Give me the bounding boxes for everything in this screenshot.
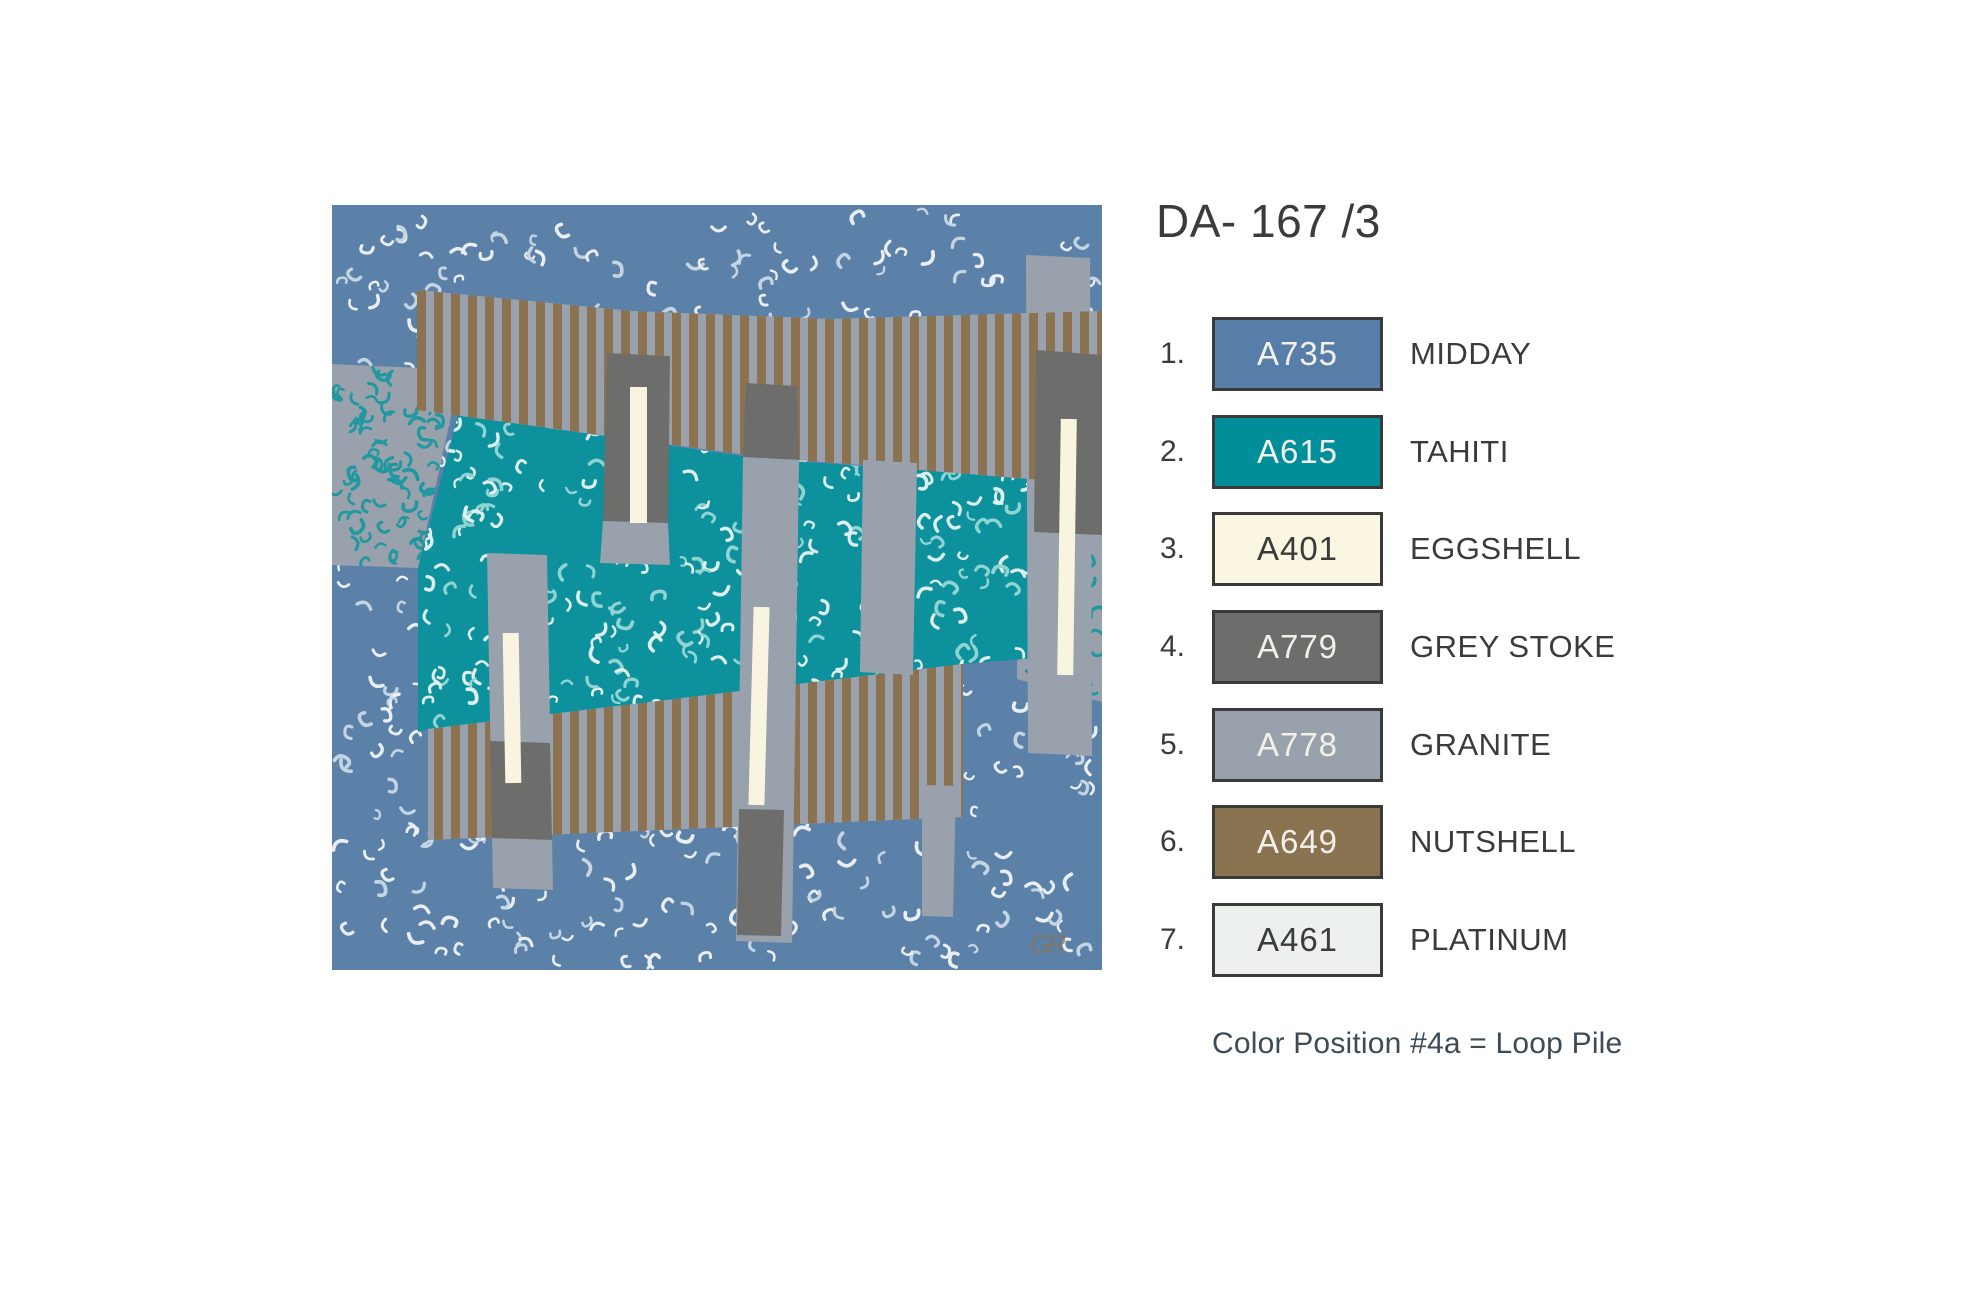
- color-swatch: A735: [1212, 317, 1383, 391]
- legend-row: 7. A461 PLATINUM: [1100, 903, 1740, 977]
- color-swatch: A401: [1212, 512, 1383, 586]
- legend-row: 2. A615 TAHITI: [1100, 415, 1740, 489]
- color-name-label: GREY STOKE: [1410, 629, 1615, 665]
- textile-pattern-preview: GR: [332, 205, 1102, 970]
- gr-watermark: GR: [1030, 929, 1065, 959]
- legend-row: 4. A779 GREY STOKE: [1100, 610, 1740, 684]
- legend-row: 5. A778 GRANITE: [1100, 708, 1740, 782]
- legend-item-number: 7.: [1100, 923, 1185, 957]
- legend-item-number: 6.: [1100, 825, 1185, 859]
- color-swatch: A779: [1212, 610, 1383, 684]
- legend-item-number: 5.: [1100, 728, 1185, 762]
- color-swatch: A778: [1212, 708, 1383, 782]
- spec-sheet-page: GR DA- 167 /3 1. A735 MIDDAY 2. A615 TAH…: [0, 0, 1968, 1312]
- legend-item-number: 2.: [1100, 435, 1185, 469]
- color-name-label: GRANITE: [1410, 727, 1551, 763]
- color-name-label: NUTSHELL: [1410, 824, 1576, 860]
- legend-row: 3. A401 EGGSHELL: [1100, 512, 1740, 586]
- color-name-label: EGGSHELL: [1410, 531, 1581, 567]
- textile-design-swatch: GR: [332, 205, 1102, 970]
- color-name-label: MIDDAY: [1410, 336, 1531, 372]
- legend-item-number: 1.: [1100, 337, 1185, 371]
- legend-row: 1. A735 MIDDAY: [1100, 317, 1740, 391]
- color-swatch: A615: [1212, 415, 1383, 489]
- legend-item-number: 4.: [1100, 630, 1185, 664]
- color-swatch: A461: [1212, 903, 1383, 977]
- page-title: DA- 167 /3: [1156, 198, 1381, 244]
- color-name-label: TAHITI: [1410, 434, 1509, 470]
- legend-item-number: 3.: [1100, 532, 1185, 566]
- legend-row: 6. A649 NUTSHELL: [1100, 805, 1740, 879]
- color-position-note: Color Position #4a = Loop Pile: [1212, 1027, 1622, 1061]
- color-swatch: A649: [1212, 805, 1383, 879]
- color-name-label: PLATINUM: [1410, 922, 1568, 958]
